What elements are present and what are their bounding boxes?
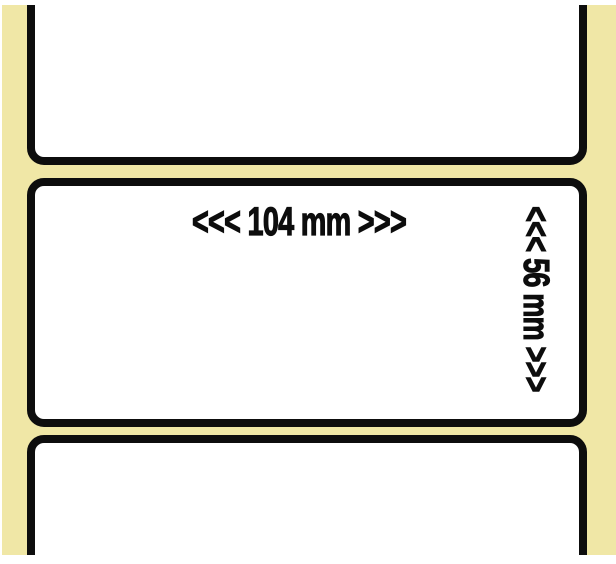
label-roll-liner: <<< 104 mm >>> <<< 56 mm >>> [2,5,616,555]
label-width-dimension: <<< 104 mm >>> [192,202,406,242]
label-media-illustration: <<< 104 mm >>> <<< 56 mm >>> [0,0,616,564]
label-top-partial [27,5,587,165]
label-middle: <<< 104 mm >>> <<< 56 mm >>> [27,178,587,427]
label-bottom-partial [27,435,587,555]
label-height-dimension: <<< 56 mm >>> [518,206,554,391]
